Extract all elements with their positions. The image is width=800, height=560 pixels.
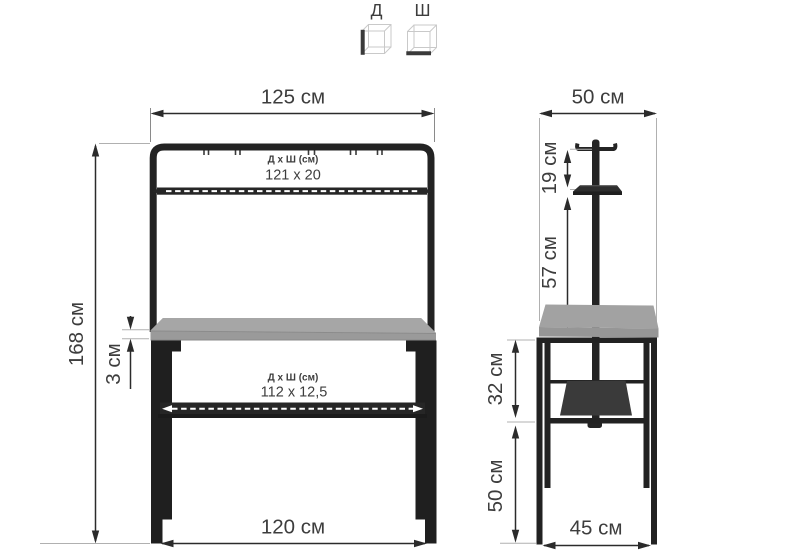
svg-text:32 см: 32 см [484, 353, 507, 406]
svg-text:50 см: 50 см [484, 460, 507, 513]
svg-text:19 см: 19 см [538, 142, 561, 195]
svg-text:112 x 12,5: 112 x 12,5 [261, 385, 328, 401]
svg-text:125 см: 125 см [261, 86, 325, 109]
svg-text:Д: Д [371, 0, 383, 20]
svg-text:3 см: 3 см [102, 343, 125, 384]
svg-text:120 см: 120 см [261, 516, 325, 539]
svg-text:Д x Ш (см): Д x Ш (см) [268, 373, 319, 384]
svg-text:50 см: 50 см [572, 86, 625, 109]
svg-text:45 см: 45 см [570, 517, 623, 540]
svg-text:Ш: Ш [414, 0, 430, 20]
svg-text:121 x 20: 121 x 20 [265, 168, 321, 184]
svg-text:57 см: 57 см [538, 236, 561, 289]
svg-text:168 см: 168 см [65, 302, 88, 366]
svg-text:Д x Ш (см): Д x Ш (см) [268, 155, 319, 166]
